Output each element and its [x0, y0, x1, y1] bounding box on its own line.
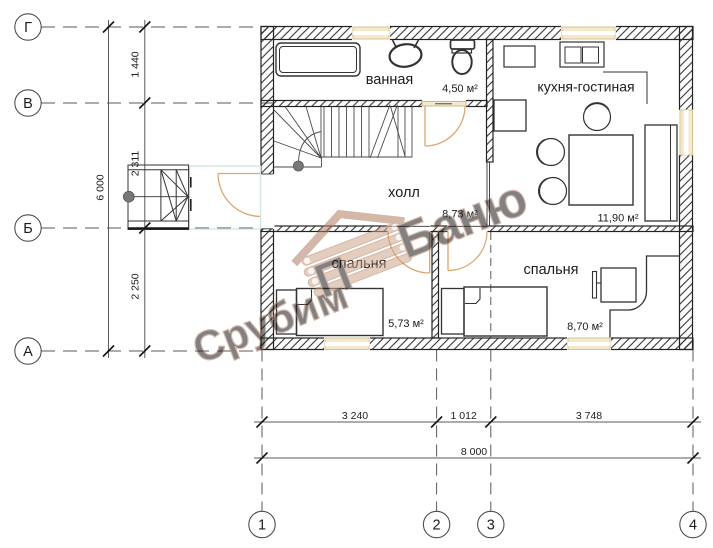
svg-text:1 012: 1 012: [451, 410, 477, 422]
svg-text:2 250: 2 250: [130, 273, 142, 299]
svg-text:3: 3: [487, 518, 495, 534]
svg-text:Г: Г: [24, 20, 32, 36]
svg-text:4,50 м²: 4,50 м²: [442, 83, 478, 95]
svg-text:8 000: 8 000: [461, 446, 487, 458]
svg-text:Б: Б: [23, 221, 33, 237]
svg-text:2 311: 2 311: [130, 151, 142, 177]
svg-text:5,73 м²: 5,73 м²: [388, 318, 424, 330]
svg-text:В: В: [23, 96, 33, 112]
svg-text:4: 4: [689, 518, 697, 534]
svg-text:3 748: 3 748: [576, 410, 602, 422]
svg-text:спальня: спальня: [523, 262, 578, 278]
svg-text:кухня-гостиная: кухня-гостиная: [537, 79, 634, 95]
svg-text:6 000: 6 000: [95, 174, 107, 200]
svg-text:А: А: [23, 344, 33, 360]
svg-text:ванная: ванная: [366, 72, 414, 88]
svg-text:8,70 м²: 8,70 м²: [567, 321, 603, 333]
svg-text:холл: холл: [388, 185, 420, 201]
svg-text:11,90 м²: 11,90 м²: [598, 213, 639, 225]
svg-text:1: 1: [258, 518, 266, 534]
svg-text:1 440: 1 440: [130, 51, 142, 77]
svg-text:2: 2: [433, 518, 441, 534]
svg-text:3 240: 3 240: [342, 410, 368, 422]
